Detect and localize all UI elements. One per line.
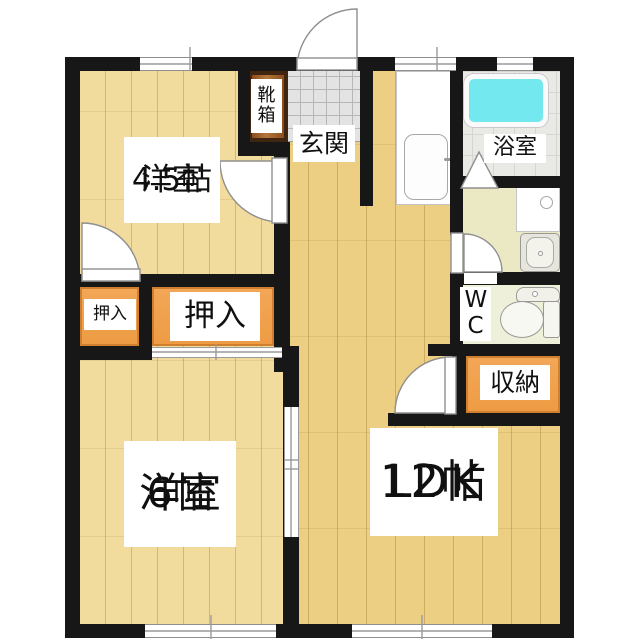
label-closet-large: 押入 — [170, 292, 260, 341]
label-ldk: LDK 12帖 — [370, 428, 498, 536]
label-closet-small: 押入 — [84, 299, 136, 330]
ldk-hall-door-arc — [395, 357, 451, 413]
floorplan: 洋室 4.5帖 玄関 靴箱 浴室 WC 収納 押入 押入 洋室 6帖 LDK 1… — [0, 0, 640, 639]
label-genkan: 玄関 — [293, 125, 355, 162]
storage-text: 収納 — [490, 369, 540, 397]
room45-size: 4.5帖 — [132, 163, 212, 198]
room6-size: 6帖 — [146, 471, 213, 517]
closet-large-text: 押入 — [184, 299, 246, 334]
genkan-text: 玄関 — [299, 130, 349, 158]
closet-small-text: 押入 — [93, 305, 127, 324]
entrance-door-leaf — [297, 58, 357, 70]
ldk-hall-door-leaf — [445, 357, 456, 414]
bathroom-text: 浴室 — [493, 136, 537, 161]
label-room45: 洋室 4.5帖 — [124, 137, 220, 223]
label-shoe-cabinet: 靴箱 — [251, 79, 282, 133]
washroom-door-arc — [464, 234, 502, 272]
label-room6: 洋室 6帖 — [124, 441, 236, 547]
room45-door-leaf — [272, 158, 287, 223]
label-bathroom: 浴室 — [484, 134, 546, 163]
closet-small-door-leaf — [82, 269, 140, 281]
ldk-size: 12帖 — [380, 457, 488, 507]
washroom-door-leaf — [451, 233, 463, 273]
label-storage: 収納 — [480, 365, 550, 400]
wc-text: WC — [465, 288, 487, 340]
shoe-cabinet-text: 靴箱 — [257, 86, 277, 126]
label-wc: WC — [460, 287, 491, 341]
